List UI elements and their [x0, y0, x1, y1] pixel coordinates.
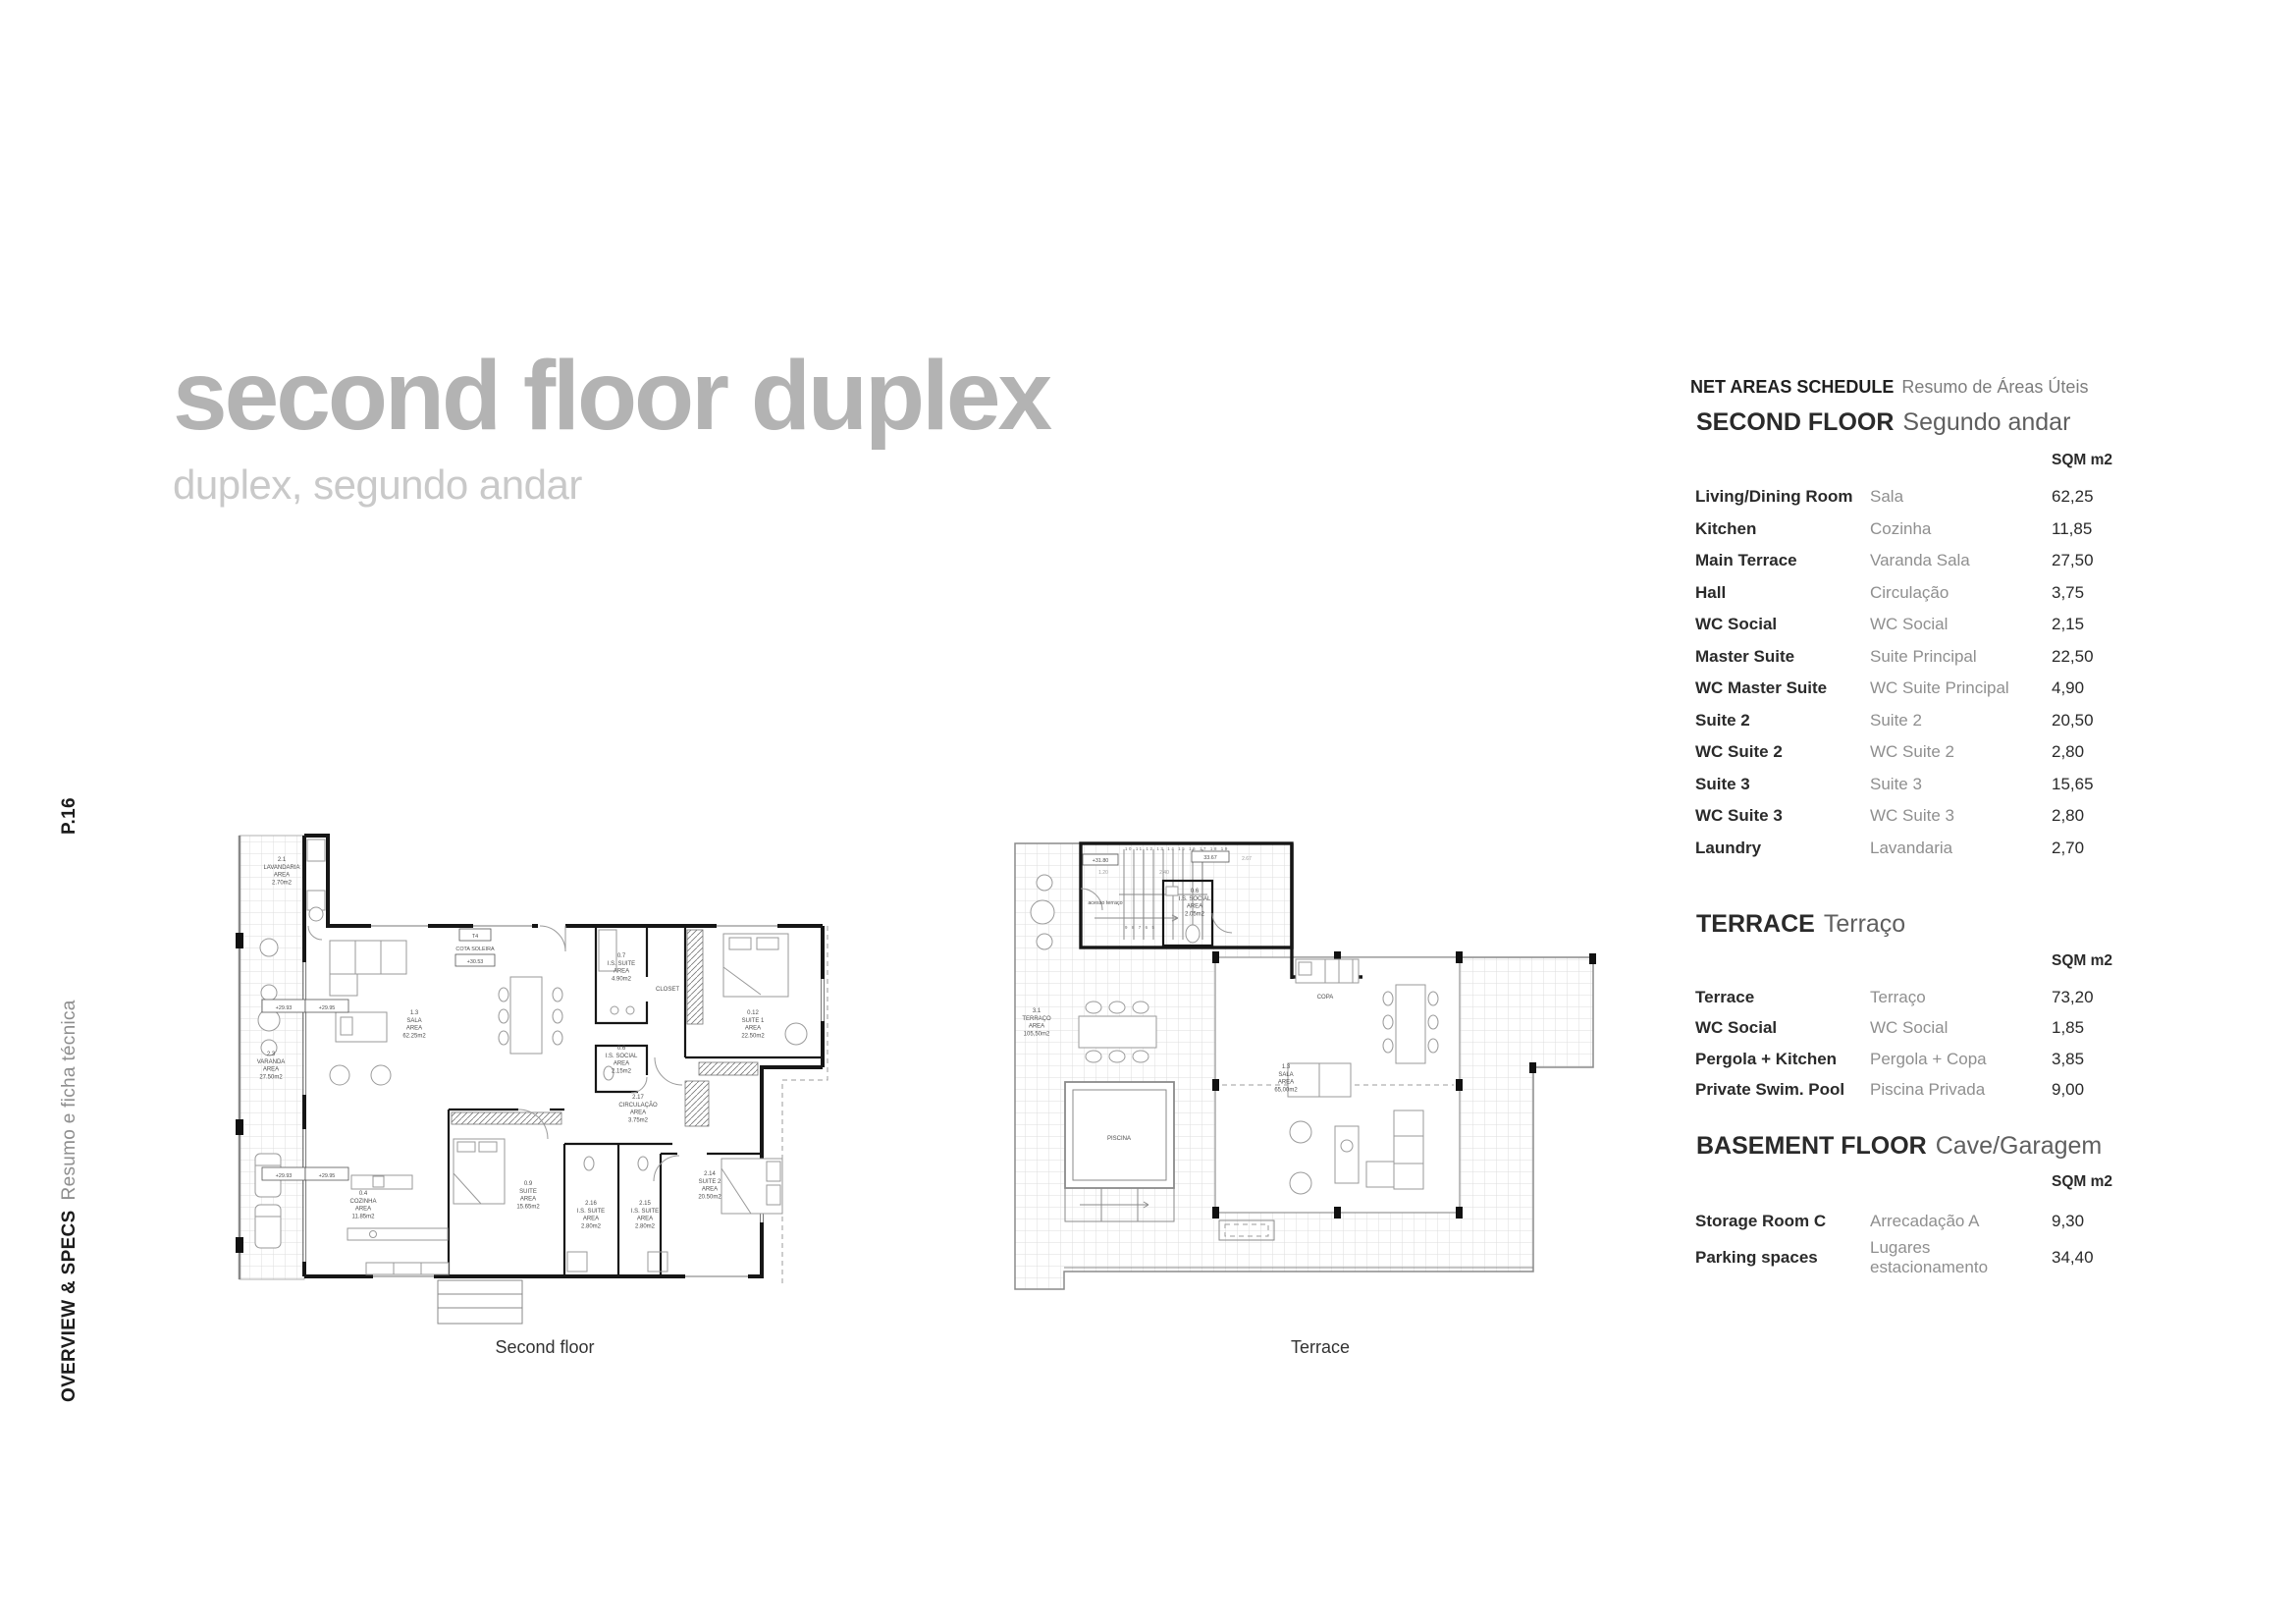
- table-row: WC SocialWC Social1,85: [1695, 1013, 2179, 1045]
- section-title-terrace: TERRACETerraço: [1688, 909, 2179, 939]
- room-pt: WC Social: [1870, 1018, 2052, 1038]
- room-en: Living/Dining Room: [1695, 487, 1870, 507]
- table-row: WC Suite 3WC Suite 32,80: [1695, 800, 2179, 833]
- room-en: Suite 2: [1695, 711, 1870, 731]
- room-en: WC Social: [1695, 1018, 1870, 1038]
- section-title-pt: Cave/Garagem: [1936, 1132, 2103, 1160]
- basement-rows: Storage Room CArrecadação A9,30 Parking …: [1688, 1205, 2179, 1277]
- plan-caption-second-floor: Second floor: [226, 1337, 864, 1358]
- room-sqm: 2,15: [2052, 615, 2179, 634]
- room-sqm: 11,85: [2052, 519, 2179, 539]
- armchair: [1290, 1121, 1311, 1143]
- room-pt: Suite Principal: [1870, 647, 2052, 667]
- room-en: WC Suite 3: [1695, 806, 1870, 826]
- dim-c: 2.67: [1242, 856, 1252, 862]
- room-pt: Cozinha: [1870, 519, 2052, 539]
- dim-total: 33.67: [1203, 855, 1217, 861]
- room-en: Hall: [1695, 583, 1870, 603]
- table-row: Main TerraceVaranda Sala27,50: [1695, 545, 2179, 577]
- room-pt: WC Social: [1870, 615, 2052, 634]
- plan-caption-terrace: Terrace: [1001, 1337, 1639, 1358]
- label-copa: COPA: [1317, 995, 1334, 1001]
- room-pt: WC Suite 3: [1870, 806, 2052, 826]
- sidebar-section-en: OVERVIEW & SPECS: [59, 1210, 80, 1402]
- room-pt: WC Suite Principal: [1870, 678, 2052, 698]
- title-block: second floor duplex duplex, segundo anda…: [173, 346, 1049, 509]
- label-acesso-terraco: acesso terraço: [1088, 900, 1122, 906]
- room-sqm: 2,80: [2052, 742, 2179, 762]
- room-pt: Varanda Sala: [1870, 551, 2052, 570]
- table-row: Living/Dining RoomSala62,25: [1695, 481, 2179, 514]
- suite1-bed: [723, 934, 788, 997]
- schedule-heading: NET AREAS SCHEDULEResumo de Áreas Úteis: [1688, 376, 2179, 398]
- table-row: Suite 2Suite 220,50: [1695, 705, 2179, 737]
- unit-type-marker: T4: [472, 934, 478, 940]
- unit-label: SQM m2: [1688, 1173, 2179, 1191]
- schedule-heading-pt: Resumo de Áreas Úteis: [1901, 377, 2088, 397]
- pergola-kitchen-counter: [1296, 959, 1359, 983]
- schedule-heading-en: NET AREAS SCHEDULE: [1690, 377, 1894, 397]
- table-row: KitchenCozinha11,85: [1695, 514, 2179, 546]
- room-sqm: 34,40: [2052, 1248, 2179, 1268]
- room-en: Kitchen: [1695, 519, 1870, 539]
- elevation-marker: +29.95: [319, 1005, 336, 1011]
- room-en: Private Swim. Pool: [1695, 1080, 1870, 1100]
- floor-plan-terrace: 3.1TERRAÇOAREA105,50m2 1.3SALAAREA65,00m…: [1001, 830, 1639, 1340]
- suite3-bed: [454, 1139, 505, 1204]
- elevation-marker: +29.93: [276, 1005, 293, 1011]
- table-row: Storage Room CArrecadação A9,30: [1695, 1205, 2179, 1238]
- media-unit: [336, 1012, 387, 1042]
- table-row: Parking spacesLugares estacionamento34,4…: [1695, 1238, 2179, 1277]
- table-row: Pergola + KitchenPergola + Copa3,85: [1695, 1044, 2179, 1075]
- deck-dining: [1079, 1001, 1156, 1062]
- section-title-pt: Terraço: [1824, 910, 1905, 938]
- room-en: Terrace: [1695, 988, 1870, 1007]
- page-title: second floor duplex: [173, 346, 1049, 446]
- room-sqm: 2,80: [2052, 806, 2179, 826]
- armchair: [1290, 1172, 1311, 1194]
- floor-plan-second-floor: 2.1LAVANDARIAAREA2.70m2 2.3VARANDAAREA27…: [226, 830, 864, 1340]
- room-sqm: 15,65: [2052, 775, 2179, 794]
- room-pt: Circulação: [1870, 583, 2052, 603]
- room-sqm: 9,30: [2052, 1212, 2179, 1231]
- table-row: Suite 3Suite 315,65: [1695, 769, 2179, 801]
- room-en: Suite 3: [1695, 775, 1870, 794]
- net-areas-schedule: NET AREAS SCHEDULEResumo de Áreas Úteis …: [1688, 376, 2179, 1277]
- room-sqm: 20,50: [2052, 711, 2179, 731]
- room-sqm: 3,75: [2052, 583, 2179, 603]
- room-en: Laundry: [1695, 839, 1870, 858]
- level-marker: +30.53: [467, 959, 484, 965]
- room-sqm: 4,90: [2052, 678, 2179, 698]
- unit-label: SQM m2: [1688, 952, 2179, 970]
- suite1-armchair: [785, 1023, 807, 1045]
- room-pt: Lugares estacionamento: [1870, 1238, 2052, 1277]
- table-row: WC SocialWC Social2,15: [1695, 609, 2179, 641]
- sidebar-section-label: OVERVIEW & SPECSResumo e ficha técnica: [59, 1000, 80, 1402]
- exterior-stair: [438, 1280, 522, 1324]
- room-sqm: 3,85: [2052, 1050, 2179, 1069]
- stair-tread-numbers: 10 11 12 13 14 15 16 17 18 19: [1125, 846, 1229, 851]
- room-sqm: 27,50: [2052, 551, 2179, 570]
- label-closet: CLOSET: [656, 987, 679, 993]
- table-row: WC Master SuiteWC Suite Principal4,90: [1695, 673, 2179, 705]
- elevation-marker: +29.95: [319, 1173, 336, 1179]
- unit-label: SQM m2: [1688, 452, 2179, 469]
- room-en: Pergola + Kitchen: [1695, 1050, 1870, 1069]
- coffee-table: [1335, 1126, 1359, 1183]
- room-pt: Piscina Privada: [1870, 1080, 2052, 1100]
- table-row: Private Swim. PoolPiscina Privada9,00: [1695, 1075, 2179, 1107]
- label-piscina: PISCINA: [1107, 1136, 1131, 1142]
- section-title-en: BASEMENT FLOOR: [1696, 1132, 1927, 1160]
- table-row: HallCirculação3,75: [1695, 577, 2179, 610]
- room-sqm: 1,85: [2052, 1018, 2179, 1038]
- section-title-en: SECOND FLOOR: [1696, 408, 1894, 436]
- sidebar-section-pt: Resumo e ficha técnica: [59, 1000, 80, 1200]
- section-title-pt: Segundo andar: [1902, 408, 2070, 436]
- room-en: Parking spaces: [1695, 1248, 1870, 1268]
- level-marker: +31.80: [1093, 858, 1109, 864]
- room-en: WC Master Suite: [1695, 678, 1870, 698]
- suite2-bed: [721, 1159, 782, 1214]
- room-pt: Pergola + Copa: [1870, 1050, 2052, 1069]
- cota-soleira-label: COTA SOLEIRA: [455, 947, 495, 952]
- room-en: Main Terrace: [1695, 551, 1870, 570]
- table-row: Master SuiteSuite Principal22,50: [1695, 641, 2179, 674]
- page-subtitle: duplex, segundo andar: [173, 461, 1049, 509]
- room-sqm: 62,25: [2052, 487, 2179, 507]
- table-row: LaundryLavandaria2,70: [1695, 833, 2179, 865]
- room-en: Master Suite: [1695, 647, 1870, 667]
- page-number: P.16: [59, 797, 80, 835]
- room-sqm: 9,00: [2052, 1080, 2179, 1100]
- stair-tread-numbers-low: 9 8 7 6 5: [1125, 925, 1156, 930]
- room-pt: Arrecadação A: [1870, 1212, 2052, 1231]
- dim-a: 1.20: [1098, 870, 1108, 876]
- section-title-second-floor: SECOND FLOORSegundo andar: [1688, 407, 2179, 437]
- room-pt: Terraço: [1870, 988, 2052, 1007]
- dim-b: 2.40: [1159, 870, 1169, 876]
- room-sqm: 22,50: [2052, 647, 2179, 667]
- room-en: WC Suite 2: [1695, 742, 1870, 762]
- room-en: WC Social: [1695, 615, 1870, 634]
- room-pt: WC Suite 2: [1870, 742, 2052, 762]
- terrace-rows: TerraceTerraço73,20 WC SocialWC Social1,…: [1688, 982, 2179, 1106]
- room-pt: Suite 2: [1870, 711, 2052, 731]
- table-row: TerraceTerraço73,20: [1695, 982, 2179, 1013]
- elevation-marker: +29.93: [276, 1173, 293, 1179]
- room-sqm: 73,20: [2052, 988, 2179, 1007]
- second-floor-rows: Living/Dining RoomSala62,25 KitchenCozin…: [1688, 481, 2179, 864]
- section-title-basement: BASEMENT FLOORCave/Garagem: [1688, 1131, 2179, 1161]
- room-pt: Lavandaria: [1870, 839, 2052, 858]
- section-title-en: TERRACE: [1696, 910, 1815, 938]
- room-en: Storage Room C: [1695, 1212, 1870, 1231]
- room-sqm: 2,70: [2052, 839, 2179, 858]
- room-pt: Suite 3: [1870, 775, 2052, 794]
- room-pt: Sala: [1870, 487, 2052, 507]
- table-row: WC Suite 2WC Suite 22,80: [1695, 736, 2179, 769]
